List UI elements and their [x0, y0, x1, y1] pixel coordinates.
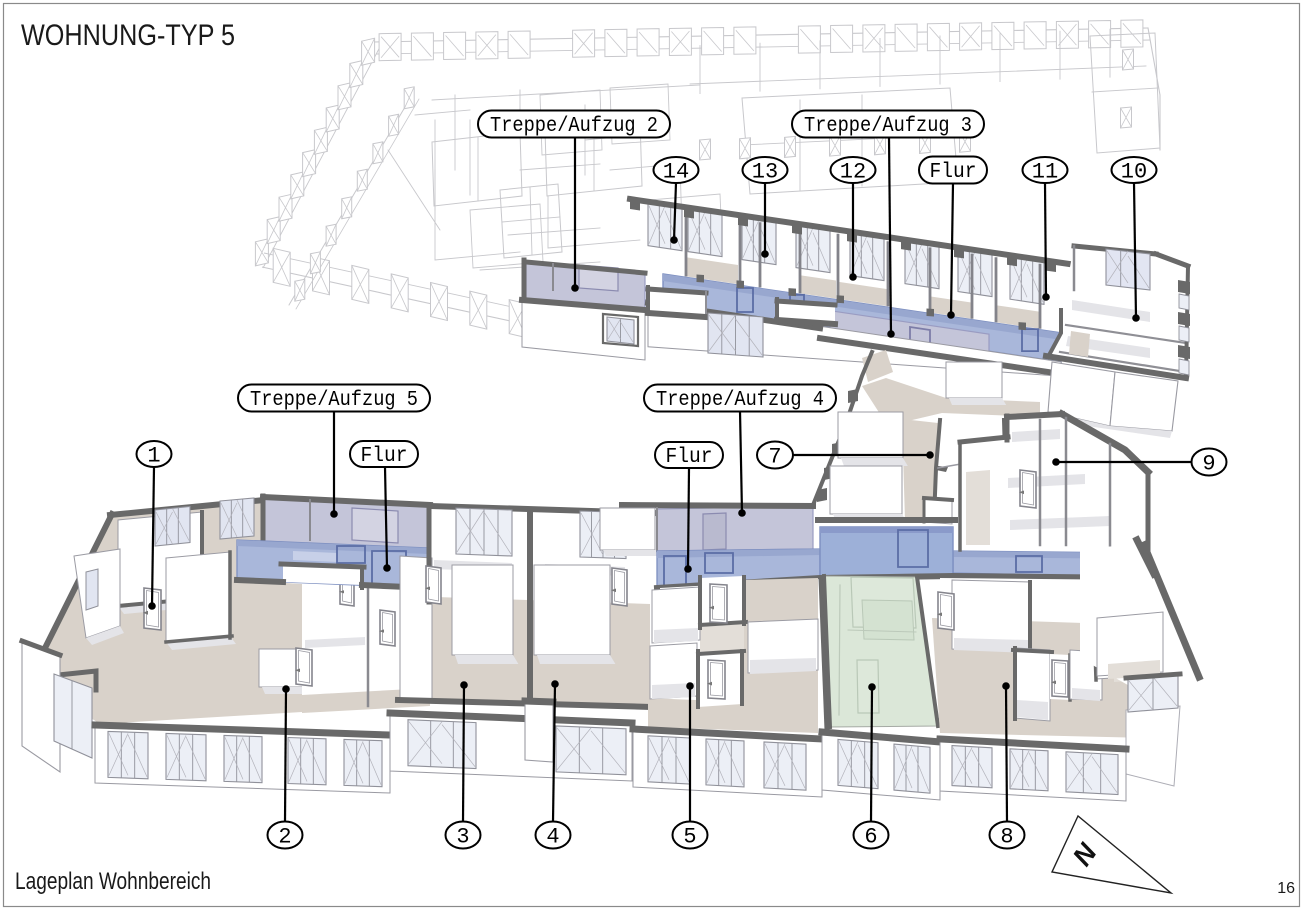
svg-text:2: 2 — [278, 824, 291, 849]
svg-text:13: 13 — [752, 159, 778, 184]
svg-text:16: 16 — [1277, 880, 1295, 897]
svg-text:Flur: Flur — [930, 161, 977, 184]
svg-text:5: 5 — [683, 824, 696, 849]
svg-text:3: 3 — [456, 824, 469, 849]
svg-text:11: 11 — [1032, 159, 1058, 184]
svg-text:10: 10 — [1121, 159, 1147, 184]
svg-text:Treppe/Aufzug 3: Treppe/Aufzug 3 — [804, 115, 972, 138]
svg-text:Treppe/Aufzug 5: Treppe/Aufzug 5 — [250, 389, 418, 412]
svg-text:7: 7 — [768, 444, 781, 469]
svg-text:WOHNUNG-TYP 5: WOHNUNG-TYP 5 — [21, 19, 235, 52]
svg-text:Lageplan Wohnbereich: Lageplan Wohnbereich — [15, 868, 211, 895]
svg-text:Treppe/Aufzug 2: Treppe/Aufzug 2 — [490, 115, 658, 138]
svg-text:4: 4 — [546, 824, 559, 849]
svg-text:6: 6 — [864, 824, 877, 849]
svg-text:Flur: Flur — [666, 446, 713, 469]
svg-text:8: 8 — [1000, 824, 1013, 849]
svg-text:12: 12 — [840, 159, 866, 184]
svg-text:9: 9 — [1202, 451, 1215, 476]
svg-text:14: 14 — [663, 159, 689, 184]
svg-text:Treppe/Aufzug 4: Treppe/Aufzug 4 — [656, 389, 824, 412]
svg-text:Flur: Flur — [361, 445, 408, 468]
svg-text:1: 1 — [147, 443, 160, 468]
